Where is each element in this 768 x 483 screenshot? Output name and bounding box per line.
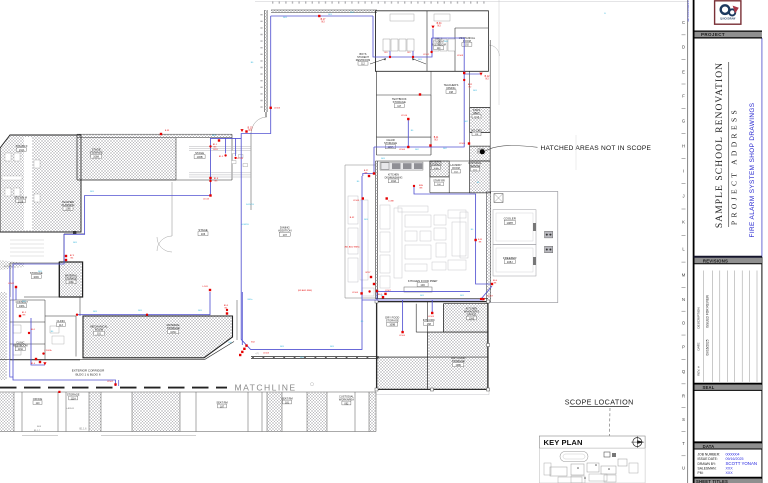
svg-text:181: 181 [285,401,290,404]
svg-text:FIRE ALARM SYSTEM SHOP DRAWING: FIRE ALARM SYSTEM SHOP DRAWINGS [749,103,756,238]
svg-text:106: 106 [201,232,206,236]
svg-text:STAGE: STAGE [198,228,207,232]
svg-text:M: M [682,273,686,278]
svg-text:108J: 108J [507,260,513,264]
svg-text:(M1 ASD SMK): (M1 ASD SMK) [345,246,360,249]
svg-text:L5N8: L5N8 [389,201,395,203]
svg-text:B1.1.7: B1.1.7 [34,430,41,432]
svg-text:111A: 111A [71,397,77,400]
svg-text:L1509: L1509 [459,143,466,145]
svg-text:SCOTT YONAN: SCOTT YONAN [726,461,758,466]
svg-text:+(T): +(T) [255,353,259,355]
svg-text:PROJECT ADDRESS: PROJECT ADDRESS [730,107,739,225]
svg-text:L1503: L1503 [428,316,435,318]
svg-text:STORAGE: STORAGE [393,100,406,104]
svg-text:I: I [683,168,684,173]
svg-text:INT. CIRC: INT. CIRC [423,318,435,322]
svg-text:106E: 106E [68,282,74,284]
svg-text:QUICKDRAW: QUICKDRAW [720,17,736,20]
svg-text:DRAWN BY:: DRAWN BY: [698,462,716,466]
svg-text:SAMPLE SCHOOL RENOVATION: SAMPLE SCHOOL RENOVATION [715,62,725,228]
svg-text:(M1 ASD SMK): (M1 ASD SMK) [298,289,312,292]
svg-text:B-SVT.B: B-SVT.B [246,204,254,206]
svg-text:REV. #: REV. # [696,366,700,376]
svg-text:STORAGE: STORAGE [384,141,397,145]
svg-text:108H: 108H [506,221,512,225]
svg-text:ADDITION: ADDITION [278,229,291,233]
svg-text:STORAGE: STORAGE [167,326,180,330]
svg-text:BLDG 1 & BLDG 6: BLDG 1 & BLDG 6 [75,372,100,376]
svg-text:REVISIONS: REVISIONS [703,259,728,264]
svg-text:106C: 106C [170,331,176,334]
svg-text:L1508: L1508 [353,200,360,202]
svg-text:T: T [682,441,685,446]
svg-text:L1513: L1513 [203,199,210,201]
svg-text:ROOM: ROOM [95,328,104,332]
svg-text:104A: 104A [391,180,397,183]
svg-text:SEAL: SEAL [703,385,715,390]
svg-text:109B: 109B [389,324,395,327]
svg-text:168: 168 [427,323,432,326]
svg-text:09/16/2025: 09/16/2025 [706,339,710,355]
svg-text:120A: 120A [388,146,394,149]
svg-text:DATE: DATE [696,342,700,350]
svg-text:G: G [682,118,685,123]
svg-text:N: N [682,297,685,302]
svg-text:L1505: L1505 [274,108,281,110]
svg-text:KITCHEN FOOD PREP: KITCHEN FOOD PREP [408,279,438,283]
svg-text:113: 113 [59,324,63,327]
svg-text:SCOPE LOCATION: SCOPE LOCATION [565,397,634,406]
svg-text:L1502: L1502 [8,283,15,285]
svg-text:U: U [682,465,685,470]
svg-text:WORKAREA: WORKAREA [339,398,354,402]
svg-text:R: R [682,393,685,398]
svg-text:109C: 109C [33,276,39,279]
svg-text:108A: 108A [19,305,25,308]
svg-text:S: S [682,417,685,422]
svg-text:L1504: L1504 [399,149,406,151]
svg-text:H: H [682,143,685,148]
svg-text:STORAGE: STORAGE [90,151,103,155]
svg-text:COOLER: COOLER [504,217,516,221]
svg-text:092: 092 [344,402,349,405]
svg-text:PM:: PM: [698,471,704,475]
svg-text:STORAGE: STORAGE [452,359,465,363]
svg-text:109E: 109E [469,317,475,320]
svg-text:PROJECT: PROJECT [701,32,725,37]
svg-text:DATA: DATA [703,444,715,449]
svg-text:L-ID101: L-ID101 [66,408,75,410]
svg-text:ISSUED FOR REVIEW: ISSUED FOR REVIEW [706,295,710,328]
svg-text:L1507: L1507 [487,296,494,298]
svg-text:KEY PLAN: KEY PLAN [544,438,583,447]
svg-text:L1510: L1510 [401,115,408,117]
svg-text:SEAT RM: SEAT RM [281,397,292,401]
svg-text:B737: B737 [366,272,372,274]
svg-text:107: 107 [283,233,288,237]
svg-text:103: 103 [420,283,425,287]
svg-text:113A: 113A [18,348,24,351]
svg-text:ISSUE DATE:: ISSUE DATE: [698,457,718,461]
svg-text:198: 198 [449,91,454,94]
svg-text:STORAGE: STORAGE [386,319,399,323]
svg-text:106A: 106A [433,167,439,170]
svg-text:L-503: L-503 [202,286,208,288]
svg-text:191: 191 [97,333,102,336]
svg-text:B1.1.6: B1.1.6 [80,428,88,431]
svg-text:SALESMAN:: SALESMAN: [698,467,717,471]
svg-text:L1504: L1504 [399,335,406,337]
svg-text:K: K [682,219,685,224]
svg-text:108A: 108A [93,156,99,159]
svg-text:108F: 108F [455,364,461,367]
svg-text:JOB NUMBER:: JOB NUMBER: [698,452,721,456]
svg-text:L1512: L1512 [423,54,430,56]
svg-text:SEAT RM: SEAT RM [216,401,227,405]
svg-text:J: J [682,193,684,198]
svg-text:STAGE: STAGE [195,151,204,155]
svg-text:132A: 132A [19,149,25,152]
svg-text:F: F [682,93,685,98]
svg-text:110: 110 [36,402,40,405]
svg-text:B63a: B63a [248,299,254,301]
svg-text:L1507: L1507 [385,290,391,292]
svg-text:C: C [682,20,685,25]
svg-text:ARCH FULL BLEED D: ARCH FULL BLEED D [687,0,690,21]
svg-text:OFFICE: OFFICE [467,313,477,317]
svg-text:L1503: L1503 [457,55,464,57]
svg-text:XXX: XXX [726,467,734,471]
svg-text:117: 117 [397,105,402,108]
svg-text:L1503: L1503 [263,352,270,354]
svg-text:OFFICE: OFFICE [33,397,43,401]
svg-text:187: 187 [220,405,225,408]
svg-text:B.52: B.52 [350,217,355,219]
svg-text:STORAGE: STORAGE [67,393,80,397]
svg-text:129B: 129B [65,209,71,211]
svg-text:106B: 106B [197,156,203,159]
svg-text:115A: 115A [474,116,479,119]
svg-text:D: D [682,45,685,50]
svg-text:CLINIC: CLINIC [57,319,66,323]
svg-text:HATCHED AREAS NOT IN SCOPE: HATCHED AREAS NOT IN SCOPE [541,145,652,152]
svg-text:MATCHLINE: MATCHLINE [235,382,297,392]
svg-text:L1504: L1504 [352,292,359,294]
svg-text:P: P [682,345,685,350]
svg-text:DINING: DINING [446,86,455,90]
svg-text:132B: 132B [18,201,24,203]
svg-text:XXX: XXX [726,471,734,475]
svg-text:E: E [682,69,685,74]
svg-text:0000004: 0000004 [726,452,740,456]
svg-text:4-2AT.B: 4-2AT.B [241,223,249,226]
svg-text:SHEET TITLES: SHEET TITLES [696,479,728,483]
svg-text:L1519: L1519 [237,158,244,160]
svg-text:FREEZER: FREEZER [503,256,517,260]
svg-text:DESCRIPTION: DESCRIPTION [696,307,700,328]
svg-text:L1501: L1501 [107,381,114,383]
svg-text:L1501A: L1501A [45,349,53,352]
